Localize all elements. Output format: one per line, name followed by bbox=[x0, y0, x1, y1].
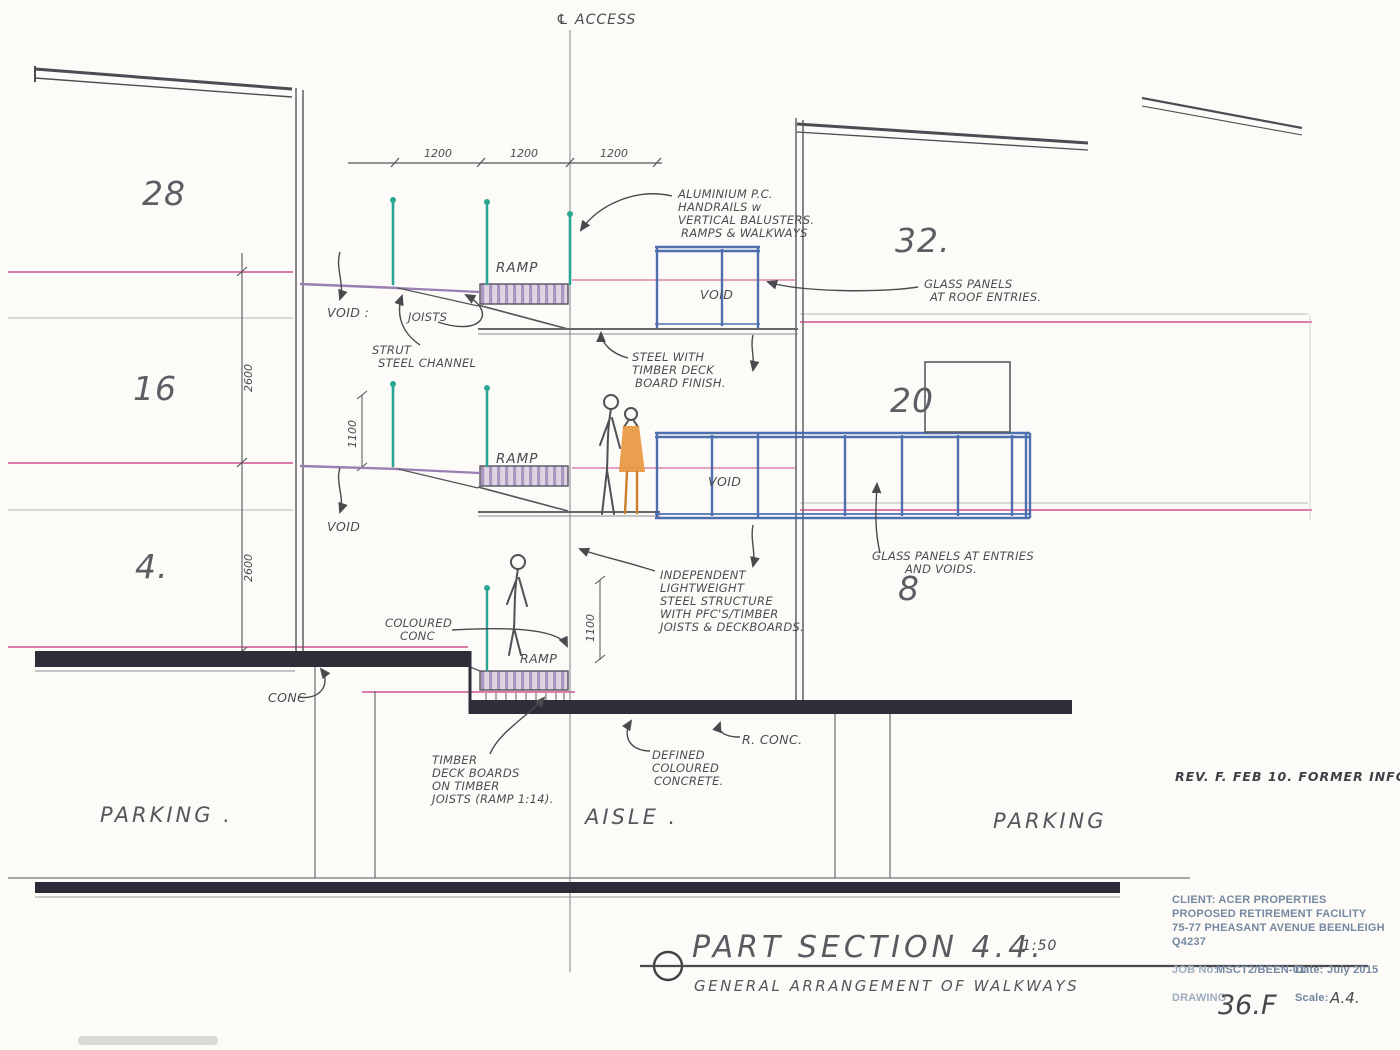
unit-number-28: 28 bbox=[142, 174, 186, 213]
title-block: CLIENT: ACER PROPERTIES PROPOSED RETIREM… bbox=[1172, 894, 1385, 1021]
note-independent: INDEPENDENT LIGHTWEIGHT STEEL STRUCTURE … bbox=[658, 568, 804, 634]
note-independent-line3: STEEL STRUCTURE bbox=[660, 594, 773, 608]
access-label: ℄ ACCESS bbox=[556, 12, 636, 28]
note-timber-deck-line3: ON TIMBER bbox=[432, 779, 500, 793]
unit-number-20: 20 bbox=[890, 381, 934, 420]
note-strut-line1: STRUT bbox=[372, 343, 412, 357]
scan-smudge bbox=[78, 1036, 218, 1045]
note-timber-deck-line4: JOISTS (RAMP 1:14). bbox=[430, 792, 554, 806]
dim-1100-a: 1100 bbox=[346, 420, 359, 448]
deck-top bbox=[480, 284, 568, 304]
job-label: JOB No: bbox=[1172, 964, 1217, 976]
ramp-label-mid: RAMP bbox=[496, 451, 538, 467]
revision-note: REV. F. FEB 10. FORMER INFO bbox=[1175, 769, 1400, 784]
note-strut: STRUT STEEL CHANNEL bbox=[372, 343, 476, 370]
note-timber-deck: TIMBER DECK BOARDS ON TIMBER JOISTS (RAM… bbox=[430, 753, 554, 806]
dim-1200-a: 1200 bbox=[424, 147, 452, 160]
unit-number-32: 32. bbox=[895, 221, 950, 260]
dim-1100-b: 1100 bbox=[584, 614, 597, 642]
scale-value: A.4. bbox=[1329, 989, 1360, 1007]
right-roof bbox=[797, 98, 1302, 150]
note-glass-roof: GLASS PANELS AT ROOF ENTRIES. bbox=[924, 277, 1041, 304]
note-strut-line2: STEEL CHANNEL bbox=[378, 356, 476, 370]
void-label-box-mid: VOID bbox=[708, 474, 741, 489]
drawing-subtitle: GENERAL ARRANGEMENT OF WALKWAYS bbox=[694, 977, 1079, 995]
note-steel-timber: STEEL WITH TIMBER DECK BOARD FINISH. bbox=[632, 350, 726, 390]
note-joists: JOISTS bbox=[406, 310, 447, 324]
note-independent-line4: WITH PFC'S/TIMBER bbox=[660, 607, 779, 621]
note-glass-entries: GLASS PANELS AT ENTRIES AND VOIDS. bbox=[872, 549, 1034, 576]
note-defined-conc-line2: COLOURED bbox=[652, 761, 719, 775]
baluster-bottom bbox=[484, 585, 490, 670]
drawing-number-value: 36.F bbox=[1218, 990, 1277, 1021]
note-defined-conc: DEFINED COLOURED CONCRETE. bbox=[652, 748, 724, 788]
date-label: Date: bbox=[1295, 964, 1324, 976]
note-steel-timber-line2: TIMBER DECK bbox=[632, 363, 715, 377]
zone-parking-left: PARKING . bbox=[100, 803, 233, 827]
left-roof bbox=[35, 66, 292, 97]
note-coloured-conc: COLOURED CONC bbox=[385, 616, 452, 643]
note-defined-conc-line1: DEFINED bbox=[652, 748, 705, 762]
note-independent-line2: LIGHTWEIGHT bbox=[660, 581, 745, 595]
drawing-title-scale: 1:50 bbox=[1022, 938, 1057, 954]
note-coloured-conc-line1: COLOURED bbox=[385, 616, 452, 630]
note-handrails-line3: VERTICAL BALUSTERS. bbox=[678, 213, 814, 227]
client-line4: Q4237 bbox=[1172, 936, 1206, 948]
void-label-left-mid: VOID bbox=[327, 519, 360, 534]
ramp-label-bottom: RAMP bbox=[520, 651, 557, 666]
note-glass-roof-line2: AT ROOF ENTRIES. bbox=[929, 290, 1041, 304]
note-steel-timber-line3: BOARD FINISH. bbox=[635, 376, 726, 390]
note-coloured-conc-line2: CONC bbox=[400, 629, 435, 643]
dim-1200-c: 1200 bbox=[600, 147, 628, 160]
note-timber-deck-line2: DECK BOARDS bbox=[432, 766, 520, 780]
note-handrails-line4: RAMPS & WALKWAYS bbox=[681, 226, 808, 240]
note-handrails-line1: ALUMINIUM P.C. bbox=[677, 187, 773, 201]
client-line1: CLIENT: ACER PROPERTIES bbox=[1172, 894, 1327, 906]
deck-bottom bbox=[480, 671, 568, 690]
title-group: PART SECTION 4.4. 1:50 GENERAL ARRANGEME… bbox=[640, 930, 1368, 995]
figure-orange-dress bbox=[619, 426, 645, 472]
figure-bottom bbox=[507, 555, 527, 655]
left-wall bbox=[296, 88, 303, 656]
void-label-left-top: VOID : bbox=[327, 305, 369, 320]
dim-1200-b: 1200 bbox=[510, 147, 538, 160]
left-dimension-line bbox=[237, 253, 247, 658]
note-defined-conc-line3: CONCRETE. bbox=[654, 774, 724, 788]
note-handrails-line2: HANDRAILS w bbox=[678, 200, 762, 214]
scanned-drawing-sheet: ℄ ACCESS 1200 1200 1200 2600 2600 bbox=[0, 0, 1400, 1050]
note-glass-entries-line1: GLASS PANELS AT ENTRIES bbox=[872, 549, 1034, 563]
dim-2600-a: 2600 bbox=[242, 364, 255, 392]
note-independent-line5: JOISTS & DECKBOARDS. bbox=[658, 620, 804, 634]
slab-left bbox=[35, 651, 470, 667]
ground-lines bbox=[8, 878, 1190, 897]
support-lines-to-ground bbox=[315, 667, 890, 878]
balusters-top bbox=[390, 197, 573, 284]
part-section-drawing: ℄ ACCESS 1200 1200 1200 2600 2600 bbox=[0, 0, 1400, 1050]
scale-label: Scale: bbox=[1295, 992, 1329, 1004]
note-conc: CONC bbox=[268, 690, 306, 705]
figure-orange-legs bbox=[625, 472, 637, 513]
deck-mid bbox=[480, 466, 568, 486]
drawing-title: PART SECTION 4.4. bbox=[692, 930, 1045, 965]
note-glass-roof-line1: GLASS PANELS bbox=[924, 277, 1012, 291]
zone-aisle: AISLE . bbox=[583, 805, 678, 829]
zone-parking-right: PARKING bbox=[993, 809, 1107, 833]
note-independent-line1: INDEPENDENT bbox=[660, 568, 747, 582]
slab-right bbox=[470, 700, 1072, 714]
note-r-conc: R. CONC. bbox=[742, 732, 802, 747]
note-handrails: ALUMINIUM P.C. HANDRAILS w VERTICAL BALU… bbox=[677, 187, 814, 240]
note-glass-entries-line2: AND VOIDS. bbox=[904, 562, 977, 576]
note-steel-timber-line1: STEEL WITH bbox=[632, 350, 704, 364]
unit-number-4: 4. bbox=[135, 547, 169, 586]
date-value: July 2015 bbox=[1327, 964, 1378, 976]
balusters-mid bbox=[390, 381, 490, 466]
secondary-level-lines bbox=[8, 314, 1310, 520]
ramp-label-top: RAMP bbox=[496, 260, 538, 276]
client-line3: 75-77 PHEASANT AVENUE BEENLEIGH bbox=[1172, 922, 1385, 934]
glass-panel-pencil-box bbox=[925, 362, 1010, 432]
unit-number-16: 16 bbox=[133, 369, 177, 408]
job-value: MSCT2/BEEN-01 bbox=[1216, 964, 1305, 976]
client-line2: PROPOSED RETIREMENT FACILITY bbox=[1172, 908, 1367, 920]
void-label-box-top: VOID bbox=[700, 287, 733, 302]
note-timber-deck-line1: TIMBER bbox=[432, 753, 477, 767]
dim-2600-b: 2600 bbox=[242, 554, 255, 582]
